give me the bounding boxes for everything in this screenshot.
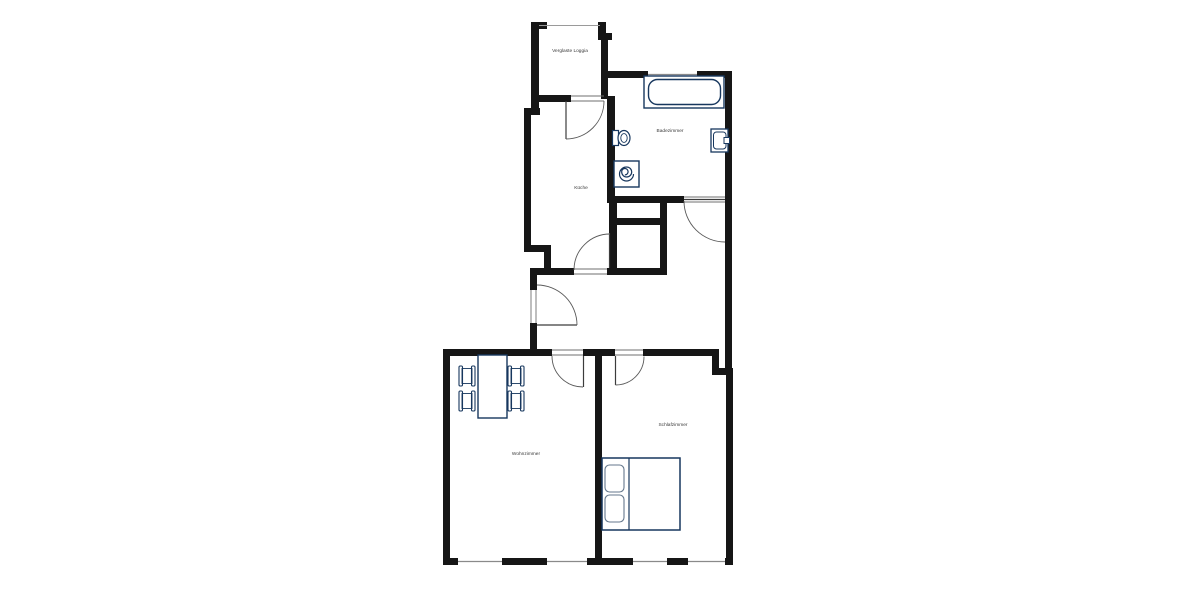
entrance-door: [537, 285, 577, 325]
furniture: [459, 76, 730, 530]
chair: [459, 366, 475, 386]
floor-plan: Verglaste Loggia Badezimmer Küche Schlaf…: [0, 0, 1200, 600]
pillow: [605, 495, 624, 522]
kitchen-door: [574, 233, 610, 270]
room-label-kueche: Küche: [574, 185, 588, 191]
bathroom-door: [684, 200, 725, 243]
loggia-door: [566, 101, 604, 139]
livingroom-door: [552, 356, 584, 387]
floor-plan-page: Verglaste Loggia Badezimmer Küche Schlaf…: [0, 0, 1200, 600]
room-label-badezimmer: Badezimmer: [657, 128, 684, 134]
doors: [537, 101, 725, 387]
bedroom-door: [616, 356, 645, 385]
room-label-wohnzimmer: Wohnzimmer: [512, 451, 541, 457]
dining-table: [478, 355, 507, 418]
chair: [508, 391, 524, 411]
room-label-schlafzimmer: Schlafzimmer: [658, 422, 687, 428]
chair: [508, 366, 524, 386]
room-label-loggia: Verglaste Loggia: [552, 48, 588, 54]
pillow: [605, 465, 624, 492]
double-bed: [602, 458, 680, 530]
washing-machine: [614, 161, 639, 187]
toilet: [613, 131, 631, 146]
bathtub: [644, 76, 724, 108]
chair: [459, 391, 475, 411]
sink: [711, 129, 730, 152]
